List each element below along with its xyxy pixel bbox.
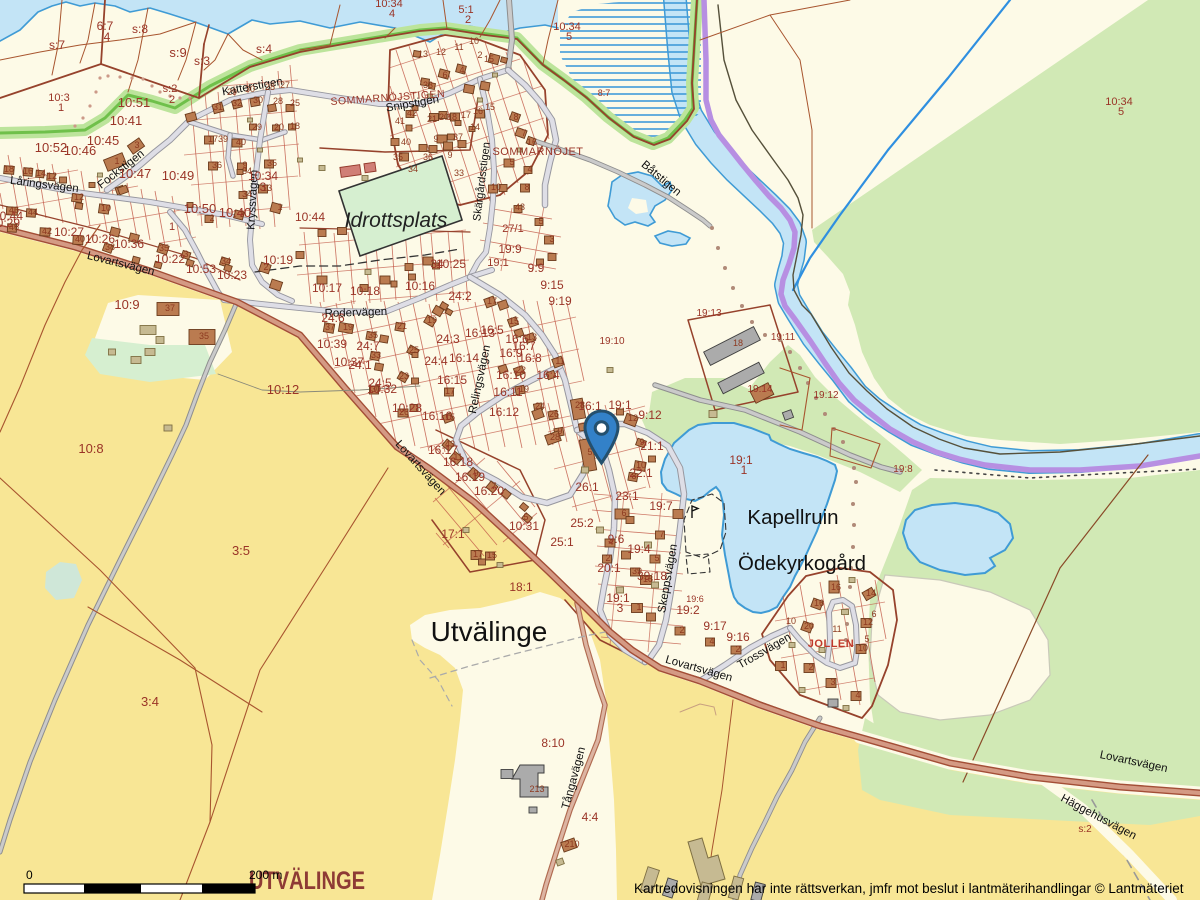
svg-text:43: 43	[445, 439, 455, 449]
svg-text:10: 10	[469, 36, 479, 46]
svg-text:20: 20	[804, 621, 814, 631]
svg-text:7: 7	[659, 529, 664, 539]
svg-text:Utvälinge: Utvälinge	[431, 616, 548, 647]
svg-text:0: 0	[26, 868, 33, 882]
svg-text:SOMMARNÖJET: SOMMARNÖJET	[492, 146, 583, 158]
svg-text:4:4: 4:4	[582, 810, 599, 824]
svg-text:10:53: 10:53	[186, 262, 216, 276]
svg-text:13: 13	[418, 49, 428, 59]
svg-text:10:47: 10:47	[119, 166, 152, 181]
svg-text:JOLLEN: JOLLEN	[808, 638, 854, 650]
svg-text:2: 2	[263, 262, 268, 272]
svg-text:28: 28	[265, 82, 275, 92]
svg-text:10:44: 10:44	[295, 210, 325, 224]
svg-text:4: 4	[709, 636, 714, 646]
svg-text:10:41: 10:41	[110, 113, 143, 128]
svg-text:17: 17	[487, 296, 497, 306]
svg-text:36: 36	[423, 152, 433, 162]
svg-text:19:1: 19:1	[608, 398, 632, 412]
svg-text:20: 20	[439, 112, 449, 122]
svg-text:42: 42	[407, 108, 417, 118]
svg-text:30: 30	[371, 384, 381, 394]
svg-text:34: 34	[430, 257, 444, 271]
svg-text:25: 25	[290, 98, 300, 108]
svg-text:27/1: 27/1	[502, 223, 523, 235]
svg-text:4: 4	[104, 30, 111, 44]
svg-text:17: 17	[473, 549, 483, 559]
svg-text:9:16: 9:16	[726, 630, 750, 644]
svg-text:29: 29	[252, 122, 262, 132]
svg-text:34: 34	[408, 164, 418, 174]
svg-text:11: 11	[832, 624, 841, 634]
svg-text:23: 23	[399, 371, 409, 381]
svg-text:1: 1	[780, 660, 785, 670]
svg-text:18:1: 18:1	[509, 580, 533, 594]
svg-text:15: 15	[509, 316, 519, 326]
svg-text:8:10: 8:10	[541, 736, 565, 750]
svg-text:27: 27	[280, 80, 290, 90]
svg-text:15: 15	[484, 54, 494, 64]
svg-text:15: 15	[487, 550, 497, 560]
svg-text:1: 1	[636, 602, 641, 612]
svg-text:16:19: 16:19	[455, 470, 485, 484]
svg-text:10:16: 10:16	[405, 279, 435, 293]
svg-text:18: 18	[4, 164, 14, 174]
svg-text:1: 1	[114, 156, 119, 166]
svg-text:12: 12	[436, 47, 446, 57]
svg-text:42: 42	[42, 226, 52, 236]
svg-text:17: 17	[208, 134, 218, 144]
svg-text:14: 14	[36, 168, 46, 178]
svg-text:46: 46	[9, 222, 19, 232]
svg-text:4: 4	[608, 537, 613, 547]
svg-text:16: 16	[814, 598, 824, 608]
svg-text:10:49: 10:49	[162, 168, 195, 183]
svg-text:10:37: 10:37	[334, 355, 364, 369]
svg-text:6: 6	[442, 70, 447, 80]
svg-text:21: 21	[397, 321, 407, 331]
svg-text:19: 19	[427, 315, 437, 325]
svg-text:10:23: 10:23	[217, 268, 247, 282]
svg-text:19:9: 19:9	[498, 242, 522, 256]
svg-text:38: 38	[105, 242, 115, 252]
svg-text:2: 2	[477, 50, 482, 60]
svg-text:10: 10	[858, 643, 868, 653]
svg-text:17: 17	[445, 386, 455, 396]
svg-text:40: 40	[236, 137, 246, 147]
svg-text:12: 12	[47, 171, 57, 181]
svg-text:10:12: 10:12	[267, 382, 300, 397]
svg-text:5: 5	[566, 31, 572, 43]
svg-text:12: 12	[628, 413, 638, 423]
svg-text:36: 36	[212, 160, 222, 170]
svg-text:30: 30	[245, 84, 255, 94]
svg-text:s:2: s:2	[1078, 824, 1092, 835]
svg-text:3: 3	[617, 601, 624, 615]
svg-text:15: 15	[445, 412, 455, 422]
svg-text:17:1: 17:1	[441, 527, 465, 541]
svg-text:7: 7	[521, 128, 526, 138]
svg-text:Idrottsplats: Idrottsplats	[345, 209, 448, 232]
svg-text:s:8: s:8	[132, 22, 148, 36]
svg-text:18: 18	[733, 338, 743, 348]
svg-text:25:1: 25:1	[550, 535, 574, 549]
svg-text:17: 17	[461, 110, 471, 120]
svg-text:10:22: 10:22	[155, 252, 185, 266]
svg-text:10:18: 10:18	[350, 284, 380, 298]
svg-text:33: 33	[454, 168, 464, 178]
svg-text:37: 37	[453, 132, 463, 142]
svg-text:2: 2	[465, 14, 471, 26]
svg-text:35: 35	[267, 158, 277, 168]
svg-text:28: 28	[273, 96, 283, 106]
svg-text:26:1: 26:1	[575, 480, 599, 494]
svg-text:Kapellruin: Kapellruin	[747, 506, 838, 529]
svg-text:8: 8	[524, 182, 529, 192]
svg-text:5: 5	[1118, 106, 1124, 118]
svg-text:19:1: 19:1	[487, 257, 508, 269]
svg-text:24: 24	[535, 401, 545, 411]
svg-text:3: 3	[549, 234, 554, 244]
svg-text:5: 5	[523, 512, 528, 522]
svg-text:19: 19	[343, 322, 353, 332]
svg-text:213: 213	[529, 784, 544, 794]
svg-text:s:7: s:7	[49, 38, 65, 52]
svg-text:1: 1	[58, 102, 64, 114]
svg-text:35: 35	[393, 152, 403, 162]
svg-text:12: 12	[74, 192, 84, 202]
svg-text:20: 20	[274, 122, 284, 132]
svg-text:2: 2	[169, 94, 175, 106]
svg-text:3:4: 3:4	[141, 694, 159, 709]
svg-text:16:14: 16:14	[449, 351, 479, 365]
svg-text:11: 11	[453, 452, 462, 462]
svg-text:25:2: 25:2	[570, 516, 594, 530]
svg-text:3: 3	[239, 209, 244, 219]
svg-text:5: 5	[538, 216, 543, 226]
svg-text:10: 10	[491, 182, 501, 192]
svg-text:19:10: 19:10	[599, 336, 624, 347]
svg-text:40: 40	[401, 137, 411, 147]
svg-text:22: 22	[516, 365, 526, 375]
svg-text:1: 1	[277, 202, 282, 212]
svg-text:34: 34	[242, 166, 252, 176]
svg-text:20:1: 20:1	[597, 561, 621, 575]
svg-text:2: 2	[209, 213, 214, 223]
svg-text:200 m: 200 m	[249, 868, 282, 882]
svg-text:16:5: 16:5	[480, 323, 504, 337]
svg-text:2: 2	[605, 553, 610, 563]
svg-text:43: 43	[515, 202, 525, 212]
svg-text:16: 16	[527, 137, 537, 147]
svg-text:25: 25	[409, 345, 419, 355]
svg-text:9:19: 9:19	[548, 294, 572, 308]
svg-text:46: 46	[9, 205, 19, 215]
svg-text:9:9: 9:9	[528, 261, 545, 275]
svg-text:16: 16	[473, 106, 483, 116]
svg-text:26: 26	[399, 407, 409, 417]
svg-text:24:2: 24:2	[448, 289, 472, 303]
svg-text:4: 4	[389, 8, 395, 20]
svg-text:34: 34	[242, 189, 252, 199]
svg-text:5: 5	[654, 553, 659, 563]
svg-text:5: 5	[509, 157, 514, 167]
svg-text:3: 3	[134, 140, 139, 150]
svg-text:16: 16	[831, 582, 841, 592]
svg-text:16:4: 16:4	[536, 368, 560, 382]
svg-text:29: 29	[227, 87, 237, 97]
svg-text:19:4: 19:4	[627, 542, 651, 556]
svg-text:3:5: 3:5	[232, 543, 250, 558]
svg-text:14: 14	[470, 122, 480, 132]
svg-text:16:8: 16:8	[518, 351, 542, 365]
svg-text:18: 18	[290, 121, 300, 131]
svg-text:37: 37	[165, 303, 175, 313]
svg-text:16:15: 16:15	[437, 373, 467, 387]
svg-text:8: 8	[513, 112, 518, 122]
svg-text:7: 7	[491, 481, 496, 491]
svg-text:9: 9	[473, 468, 478, 478]
svg-text:19:11: 19:11	[771, 332, 796, 343]
svg-text:10:39: 10:39	[317, 337, 347, 351]
svg-text:13: 13	[262, 183, 272, 193]
svg-text:10:46: 10:46	[64, 143, 97, 158]
svg-text:30: 30	[253, 95, 263, 105]
svg-text:2: 2	[735, 644, 740, 654]
svg-text:10:40: 10:40	[219, 205, 252, 220]
svg-text:34: 34	[221, 256, 231, 266]
svg-text:41: 41	[395, 116, 405, 126]
svg-text:s:9: s:9	[169, 45, 186, 60]
svg-text:24:4: 24:4	[424, 354, 448, 368]
svg-text:33: 33	[423, 80, 433, 90]
svg-text:9: 9	[433, 134, 438, 144]
svg-text:2: 2	[808, 662, 813, 672]
svg-text:19:7: 19:7	[649, 499, 673, 513]
svg-text:15: 15	[485, 102, 495, 112]
svg-text:39: 39	[218, 134, 228, 144]
svg-text:9: 9	[639, 437, 644, 447]
svg-text:8:7: 8:7	[598, 88, 611, 98]
svg-text:2: 2	[679, 625, 684, 635]
svg-text:19:8: 19:8	[893, 464, 913, 475]
svg-text:37: 37	[325, 322, 335, 332]
svg-text:19: 19	[519, 384, 529, 394]
svg-text:Ödekyrkogård: Ödekyrkogård	[738, 553, 866, 575]
svg-text:35: 35	[199, 331, 209, 341]
svg-text:19:14: 19:14	[747, 384, 772, 395]
svg-text:s:4: s:4	[256, 42, 272, 56]
svg-text:28: 28	[575, 400, 585, 410]
svg-text:10:36: 10:36	[114, 237, 144, 251]
svg-text:19:12: 19:12	[813, 390, 838, 401]
svg-text:10:51: 10:51	[118, 95, 151, 110]
svg-text:6: 6	[621, 508, 626, 518]
svg-text:35: 35	[368, 330, 378, 340]
svg-text:21: 21	[427, 114, 437, 124]
svg-text:210: 210	[564, 839, 579, 849]
svg-text:1: 1	[741, 463, 748, 477]
svg-text:10: 10	[101, 203, 111, 213]
svg-text:Kartredovisningen har inte rät: Kartredovisningen har inte rättsverkan, …	[634, 881, 1184, 896]
svg-text:39: 39	[632, 566, 642, 576]
svg-text:10: 10	[786, 616, 796, 626]
svg-text:19:2: 19:2	[676, 603, 700, 617]
svg-text:4: 4	[855, 690, 860, 700]
svg-text:11: 11	[454, 42, 463, 52]
svg-text:s:3: s:3	[194, 54, 210, 68]
svg-text:11: 11	[555, 356, 564, 366]
svg-text:10:17: 10:17	[312, 281, 342, 295]
svg-text:10:9: 10:9	[114, 297, 139, 312]
svg-text:23:1: 23:1	[615, 489, 639, 503]
svg-text:16: 16	[23, 166, 33, 176]
svg-text:10:52: 10:52	[35, 140, 68, 155]
svg-text:10:8: 10:8	[78, 441, 103, 456]
svg-text:1: 1	[169, 221, 175, 233]
svg-text:16:12: 16:12	[489, 405, 519, 419]
svg-text:19:13: 19:13	[696, 308, 721, 319]
svg-text:18: 18	[643, 574, 653, 584]
svg-text:19:6: 19:6	[686, 594, 704, 604]
svg-text:9: 9	[447, 150, 452, 160]
svg-text:44: 44	[28, 207, 38, 217]
svg-text:33: 33	[371, 350, 381, 360]
svg-text:3: 3	[183, 249, 188, 259]
svg-text:16:20: 16:20	[474, 484, 504, 498]
svg-text:26: 26	[549, 409, 559, 419]
svg-text:13: 13	[527, 332, 537, 342]
svg-text:40: 40	[75, 234, 85, 244]
svg-text:9:12: 9:12	[638, 408, 662, 422]
svg-text:10: 10	[636, 460, 646, 470]
svg-text:28: 28	[550, 432, 560, 442]
svg-text:9:17: 9:17	[703, 619, 727, 633]
svg-text:32: 32	[232, 98, 242, 108]
svg-text:6: 6	[871, 609, 876, 619]
svg-text:8: 8	[631, 471, 636, 481]
svg-text:3: 3	[830, 677, 835, 687]
svg-text:5: 5	[864, 634, 869, 644]
svg-text:14: 14	[866, 588, 876, 598]
svg-text:31: 31	[213, 102, 223, 112]
svg-text:4: 4	[459, 65, 464, 75]
svg-text:4: 4	[527, 164, 532, 174]
svg-text:35: 35	[159, 243, 169, 253]
svg-text:9:15: 9:15	[540, 278, 564, 292]
svg-text:24:3: 24:3	[436, 332, 460, 346]
